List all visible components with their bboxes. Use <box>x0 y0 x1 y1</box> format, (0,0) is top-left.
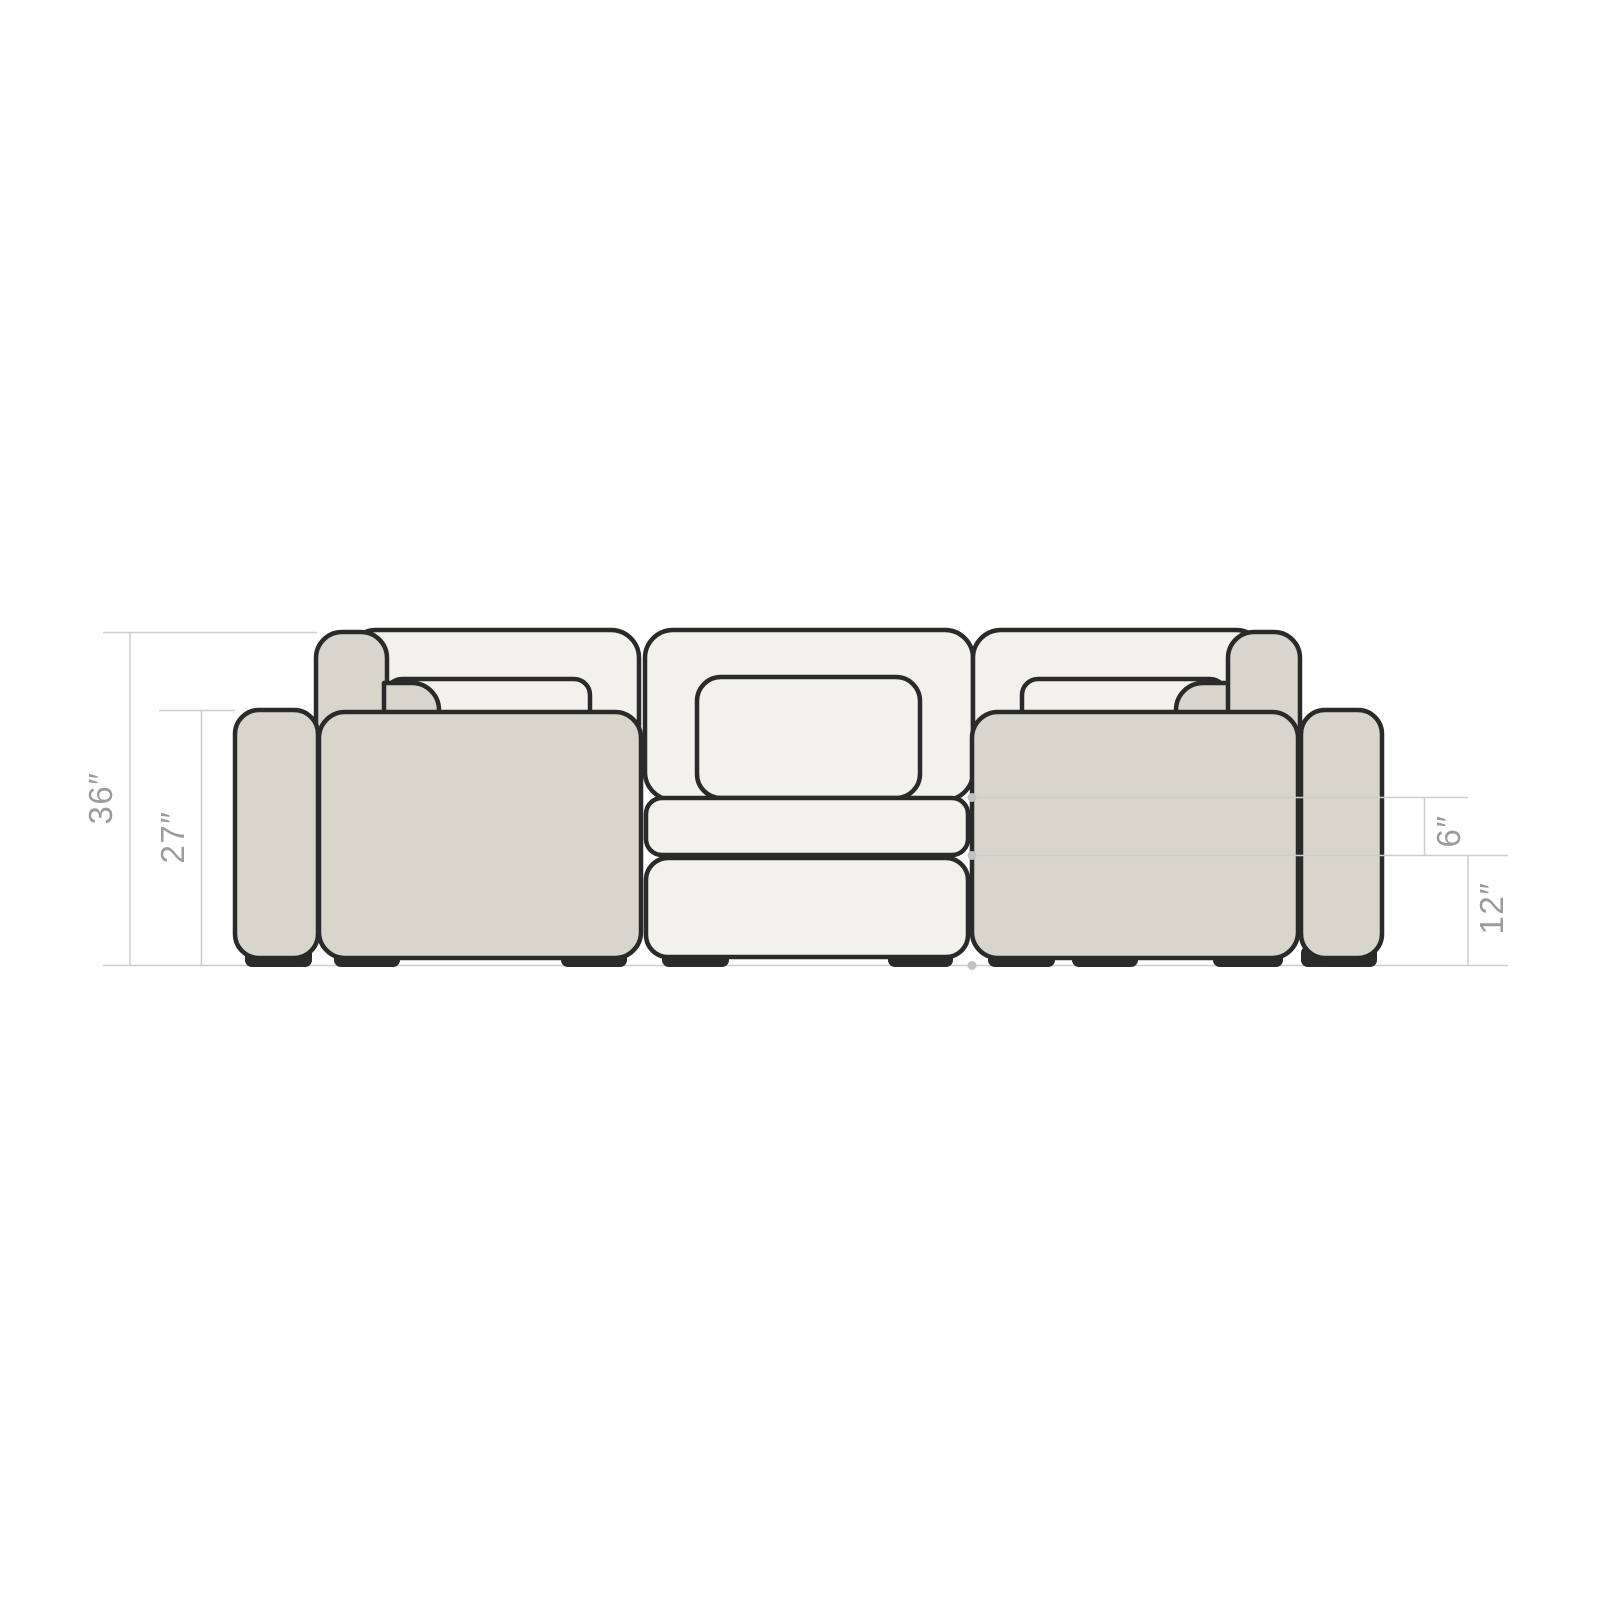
diagram-canvas: 36″ 27″ 6″ 12″ <box>0 0 1600 1600</box>
center-back-pillow <box>697 677 920 798</box>
right-front-arm <box>1301 710 1382 958</box>
dim-label-6: 6″ <box>1430 814 1467 847</box>
sofa-dimension-diagram: 36″ 27″ 6″ 12″ <box>0 0 1600 1600</box>
center-seat-cushion-bottom <box>646 858 968 957</box>
dim-label-27: 27″ <box>154 811 191 864</box>
dim-anchor-dot-middle <box>968 851 977 860</box>
dim-label-36: 36″ <box>82 772 119 825</box>
center-seat-cushion-top <box>646 798 968 855</box>
right-chaise-front <box>972 712 1298 958</box>
dim-label-12: 12″ <box>1473 882 1510 935</box>
dim-anchor-dot-top <box>968 793 977 802</box>
left-chaise-front <box>319 712 641 958</box>
left-front-arm <box>235 710 318 958</box>
dim-anchor-dot-floor <box>968 961 977 970</box>
